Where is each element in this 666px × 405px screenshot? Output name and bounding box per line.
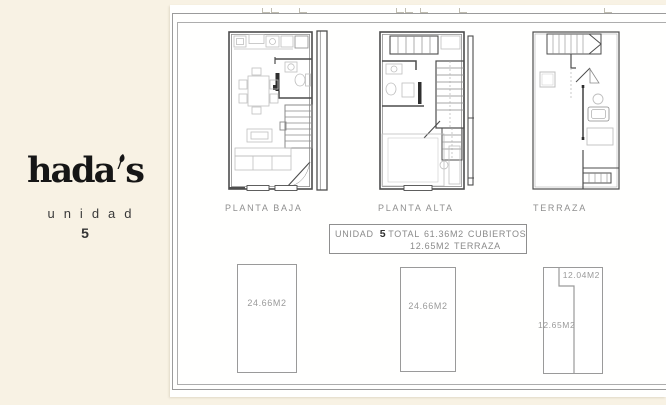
dimension-tick <box>271 8 279 13</box>
dimension-tick <box>405 8 413 13</box>
drawing-sheet: PLANTA BAJA PLANTA ALTA TERRAZA UNIDAD5T… <box>170 5 666 397</box>
terraza-label: TERRAZA <box>533 203 587 213</box>
dimension-tick <box>420 8 428 13</box>
ground-floor-area-shape: 24.66M2 <box>237 264 297 373</box>
brand-logo-text-end: s <box>125 150 143 191</box>
summary-covered-label: CUBIERTOS <box>468 229 526 239</box>
terraza-drawing <box>530 28 622 198</box>
upper-floor-area-shape: 24.66M2 <box>400 267 456 372</box>
planta-alta-plan <box>378 28 474 198</box>
summary-line-covered: UNIDAD5TOTAL61.36M2CUBIERTOS <box>330 228 526 240</box>
summary-unit-number: 5 <box>380 228 387 240</box>
planta-alta-label: PLANTA ALTA <box>378 203 454 213</box>
terrace-top-area-label: 12.04M2 <box>563 270 600 280</box>
terrace-left-area-label: 12.65M2 <box>538 320 575 330</box>
summary-total-label: TOTAL <box>388 229 420 239</box>
dimension-tick <box>262 8 270 13</box>
upper-floor-area-label: 24.66M2 <box>401 301 455 311</box>
summary-covered-area: 61.36M2 <box>424 229 464 239</box>
summary-terrace-area: 12.65M2 <box>410 241 450 251</box>
walls <box>533 32 619 189</box>
brand-logo: hadas <box>0 150 170 192</box>
unit-summary-box: UNIDAD5TOTAL61.36M2CUBIERTOS 12.65M2TERR… <box>329 224 527 254</box>
dimension-tick <box>459 8 467 13</box>
windows <box>404 186 432 191</box>
leaf-apostrophe-icon <box>115 137 126 179</box>
page: hadas unidad 5 <box>0 0 666 405</box>
planta-baja-drawing <box>227 28 331 198</box>
brand-logo-text-start: hada <box>27 150 114 191</box>
terrace-area-shape: 12.04M2 12.65M2 <box>543 267 603 374</box>
dimension-tick <box>396 8 404 13</box>
dimension-tick <box>604 8 612 13</box>
dimension-tick <box>299 8 307 13</box>
summary-line-terrace: 12.65M2TERRAZA <box>330 241 526 251</box>
planta-alta-drawing <box>378 28 474 198</box>
summary-terrace-label: TERRAZA <box>454 241 501 251</box>
planta-baja-label: PLANTA BAJA <box>225 203 303 213</box>
ground-floor-area-label: 24.66M2 <box>238 298 296 308</box>
brand-unit-word: unidad <box>0 206 179 221</box>
terraza-plan <box>530 28 622 198</box>
planta-baja-plan <box>227 28 331 198</box>
brand-panel: hadas unidad 5 <box>0 0 170 405</box>
summary-unidad-label: UNIDAD <box>335 229 374 239</box>
brand-unit-number: 5 <box>0 225 170 241</box>
